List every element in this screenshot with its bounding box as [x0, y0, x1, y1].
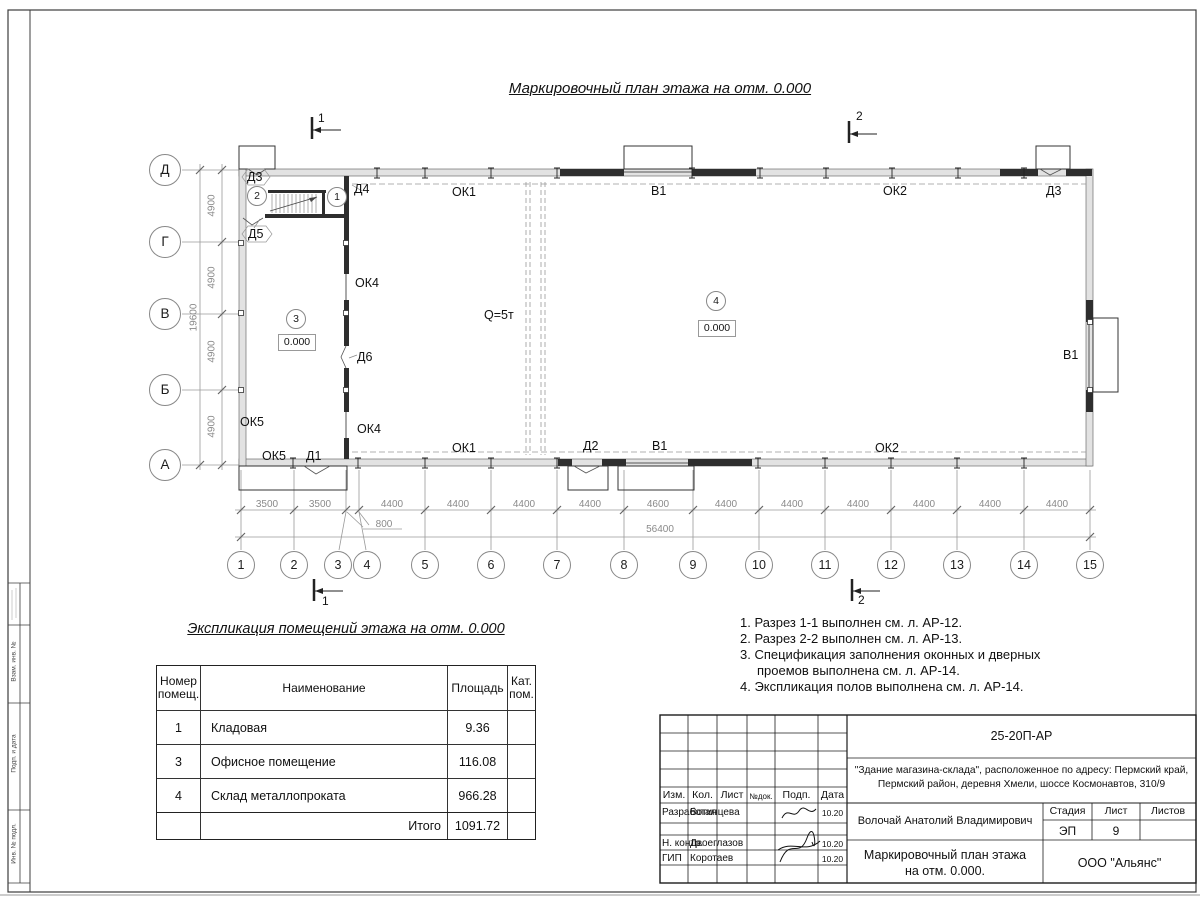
gate-mark-v1-right: В1 [1063, 348, 1078, 362]
signature-votintseva [782, 808, 816, 818]
stage-label: Стадия [1043, 805, 1092, 817]
window-mark-ok5-left: ОК5 [240, 415, 264, 429]
column-markers [239, 241, 1093, 393]
name-ncontrol: Двоеглазов [690, 838, 743, 849]
drawing-sheet: Маркировочный план этажа на отм. 0.000 Э… [0, 0, 1200, 900]
header-name: Наименование [201, 666, 448, 710]
row-name: Склад металлопроката [201, 779, 448, 812]
dim-4400-7: 4400 [838, 499, 878, 510]
axis-col-8: 8 [610, 551, 638, 579]
room-marker-2: 2 [247, 186, 267, 206]
row-num: 4 [157, 779, 201, 812]
door-mark-d1: Д1 [306, 449, 321, 463]
sill-dashed-lines [352, 184, 1086, 452]
col-kol: Кол. [688, 789, 717, 801]
axis-col-12: 12 [877, 551, 905, 579]
section-2-bottom: 2 [858, 593, 865, 607]
section-1-bottom: 1 [322, 594, 329, 608]
row-cat [508, 711, 535, 744]
axis-col-3: 3 [324, 551, 352, 579]
explication-header-row: Номер помещ. Наименование Площадь Кат. п… [157, 666, 535, 710]
door-mark-d2: Д2 [583, 439, 598, 453]
crane-rails-dashed [526, 182, 545, 455]
sheets-label: Листов [1140, 805, 1196, 817]
table-row: 4 Склад металлопроката 966.28 [157, 778, 535, 812]
row-area: 9.36 [448, 711, 508, 744]
wall-panels-dark [265, 169, 1093, 466]
dim-4400-4: 4400 [570, 499, 610, 510]
axis-col-4: 4 [353, 551, 381, 579]
door-mark-d6: Д6 [357, 350, 372, 364]
window-mark-ok4-upper: ОК4 [355, 276, 379, 290]
name-gip: Коротаев [690, 853, 733, 864]
note-4: 4. Экспликация полов выполнена см. л. АР… [740, 679, 1080, 695]
stair [270, 194, 317, 213]
dim-4900-3: 4900 [207, 332, 218, 372]
window-mark-ok4-lower: ОК4 [357, 422, 381, 436]
total-label: Итого [201, 813, 448, 839]
room-marker-1: 1 [327, 187, 347, 207]
axis-col-15: 15 [1076, 551, 1104, 579]
axis-col-2: 2 [280, 551, 308, 579]
section-1-top: 1 [318, 111, 325, 125]
signature-controllers [778, 831, 820, 862]
axis-col-7: 7 [543, 551, 571, 579]
section-2-top: 2 [856, 109, 863, 123]
company-name: ООО "Альянс" [1043, 856, 1196, 870]
general-notes: 1. Разрез 1-1 выполнен см. л. АР-12. 2. … [740, 615, 1080, 695]
explication-table: Номер помещ. Наименование Площадь Кат. п… [156, 665, 536, 840]
gate-mark-v1-bottom: В1 [652, 439, 667, 453]
dim-4900-4: 4900 [207, 407, 218, 447]
dim-4400-9: 4400 [970, 499, 1010, 510]
porches [239, 146, 1118, 490]
door-mark-d5: Д5 [248, 227, 263, 241]
axis-row-a: А [149, 449, 181, 481]
room-marker-4: 4 [706, 291, 726, 311]
axis-row-d: Д [149, 154, 181, 186]
date-developer: 10.20 [818, 808, 847, 818]
row-area: 116.08 [448, 745, 508, 778]
total-empty-cell [157, 813, 201, 839]
gate-mark-v1-top: В1 [651, 184, 666, 198]
elevation-room-3: 0.000 [278, 334, 316, 351]
dim-4900-2: 4900 [207, 258, 218, 298]
plan-title: Маркировочный план этажа на отм. 0.000 [440, 80, 880, 97]
door-mark-d3-topright: Д3 [1046, 184, 1061, 198]
row-area: 966.28 [448, 779, 508, 812]
elevation-room-4: 0.000 [698, 320, 736, 337]
row-cat [508, 745, 535, 778]
table-row: 1 Кладовая 9.36 [157, 710, 535, 744]
dim-3500-a: 3500 [247, 499, 287, 510]
header-area: Площадь [448, 666, 508, 710]
axis-col-9: 9 [679, 551, 707, 579]
dim-3500-b: 3500 [300, 499, 340, 510]
col-izm: Изм. [660, 789, 688, 801]
window-lines [346, 172, 1089, 463]
row-num: 1 [157, 711, 201, 744]
note-3: 3. Спецификация заполнения оконных и две… [740, 647, 1080, 679]
table-row: 3 Офисное помещение 116.08 [157, 744, 535, 778]
note-2: 2. Разрез 2-2 выполнен см. л. АР-13. [740, 631, 1080, 647]
room-marker-3: 3 [286, 309, 306, 329]
date-ncontrol: 10.20 [818, 839, 847, 849]
table-total-row: Итого 1091.72 [157, 812, 535, 839]
axis-col-14: 14 [1010, 551, 1038, 579]
axis-row-b: Б [149, 374, 181, 406]
dim-4400-3: 4400 [504, 499, 544, 510]
axis-col-10: 10 [745, 551, 773, 579]
dimension-lines [182, 164, 1096, 550]
row-name: Офисное помещение [201, 745, 448, 778]
dim-4400-2: 4400 [438, 499, 478, 510]
role-gip: ГИП [662, 853, 682, 864]
doc-number: 25-20П-АР [847, 729, 1196, 743]
dimension-ticks [196, 166, 1094, 541]
window-mark-ok1-bottom: ОК1 [452, 441, 476, 455]
sheet-number: 9 [1092, 824, 1140, 838]
dim-4400-1: 4400 [372, 499, 412, 510]
header-category: Кат. пом. [508, 666, 535, 710]
note-1: 1. Разрез 1-1 выполнен см. л. АР-12. [740, 615, 1080, 631]
crane-capacity-label: Q=5т [484, 308, 514, 322]
col-list: Лист [717, 789, 747, 801]
chief-architect-name: Волочай Анатолий Владимирович [847, 815, 1043, 827]
strip-label-vzam: Взам. инв. № [11, 624, 18, 700]
col-data: Дата [818, 789, 847, 801]
total-value: 1091.72 [448, 813, 508, 839]
row-name: Кладовая [201, 711, 448, 744]
row-cat [508, 779, 535, 812]
project-name-line1: "Здание магазина-склада", расположенное … [849, 764, 1194, 778]
dim-4900-1: 4900 [207, 186, 218, 226]
col-ndok: №док. [747, 792, 775, 801]
project-name-line2: Пермский район, деревня Хмели, шоссе Кос… [849, 778, 1194, 792]
dim-4400-8: 4400 [904, 499, 944, 510]
row-num: 3 [157, 745, 201, 778]
axis-col-13: 13 [943, 551, 971, 579]
strip-label-podp: Подп. и дата [11, 716, 18, 792]
dim-800: 800 [364, 519, 404, 530]
strip-label-inv: Инв. № подл. [11, 806, 18, 882]
window-mark-ok2-top: ОК2 [883, 184, 907, 198]
dim-total-56400: 56400 [630, 524, 690, 535]
axis-col-1: 1 [227, 551, 255, 579]
dim-4400-10: 4400 [1037, 499, 1077, 510]
window-mark-ok2-bottom: ОК2 [875, 441, 899, 455]
dim-4600: 4600 [638, 499, 678, 510]
door-mark-d3-topleft: Д3 [247, 170, 262, 184]
date-gip: 10.20 [818, 854, 847, 864]
stage-value: ЭП [1043, 824, 1092, 838]
explication-title: Экспликация помещений этажа на отм. 0.00… [156, 621, 536, 637]
axis-col-11: 11 [811, 551, 839, 579]
axis-col-6: 6 [477, 551, 505, 579]
sheet-label: Лист [1092, 805, 1140, 817]
dim-4400-6: 4400 [772, 499, 812, 510]
dim-total-19600: 19600 [189, 298, 200, 338]
door-mark-d4: Д4 [354, 182, 369, 196]
axis-row-v: В [149, 298, 181, 330]
window-mark-ok5-bottom: ОК5 [262, 449, 286, 463]
axis-col-5: 5 [411, 551, 439, 579]
name-developer: Вотинцева [690, 807, 740, 818]
col-podp: Подп. [775, 789, 818, 801]
header-room-number: Номер помещ. [157, 666, 201, 710]
dim-4400-5: 4400 [706, 499, 746, 510]
total-cat-cell [508, 813, 535, 839]
window-mark-ok1-top: ОК1 [452, 185, 476, 199]
axis-row-g: Г [149, 226, 181, 258]
drawing-name: Маркировочный план этажа на отм. 0.000. [857, 848, 1033, 879]
mullion-ticks [290, 168, 1027, 468]
